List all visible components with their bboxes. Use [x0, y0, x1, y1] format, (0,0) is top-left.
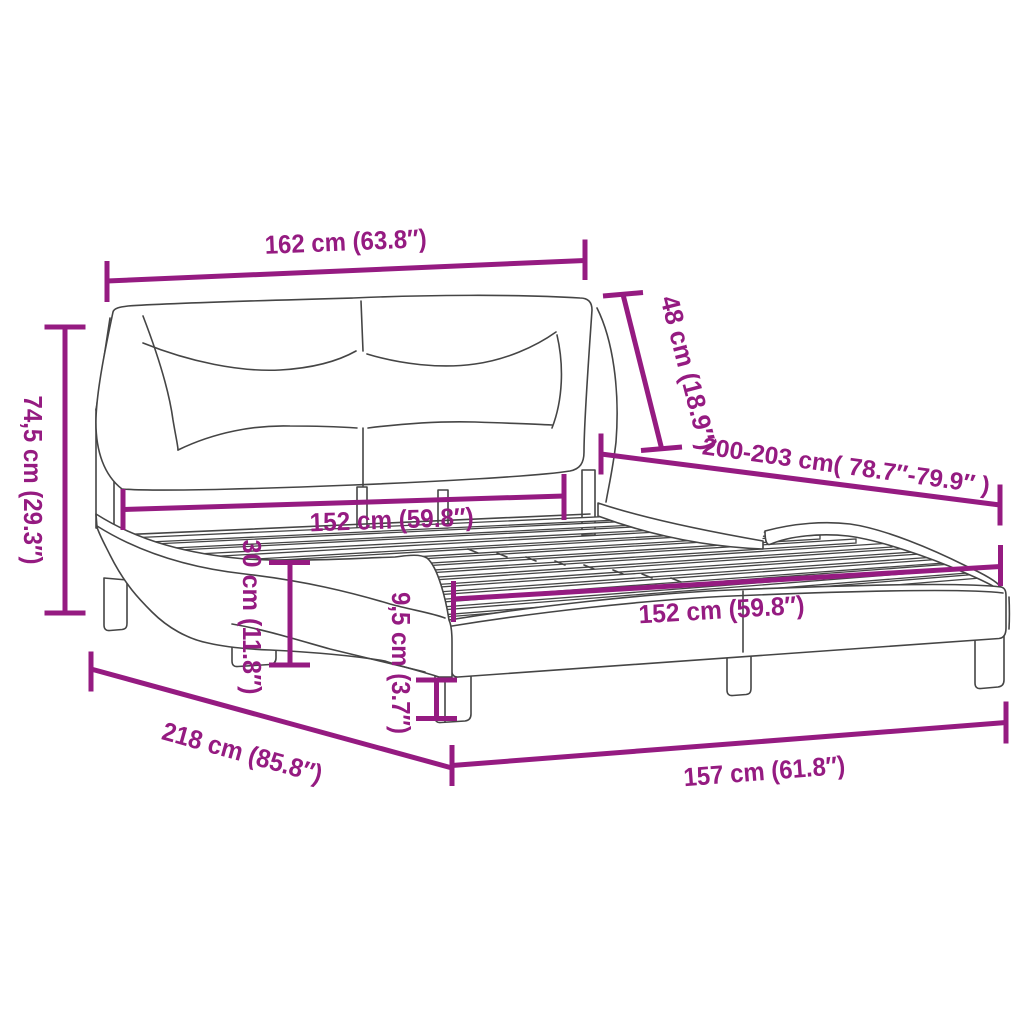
- svg-text:30 cm (11.8″): 30 cm (11.8″): [237, 540, 267, 695]
- svg-text:9,5 cm (3.7″): 9,5 cm (3.7″): [386, 592, 416, 734]
- svg-text:152 cm (59.8″): 152 cm (59.8″): [309, 502, 474, 538]
- svg-text:74,5 cm (29.3″): 74,5 cm (29.3″): [18, 396, 48, 565]
